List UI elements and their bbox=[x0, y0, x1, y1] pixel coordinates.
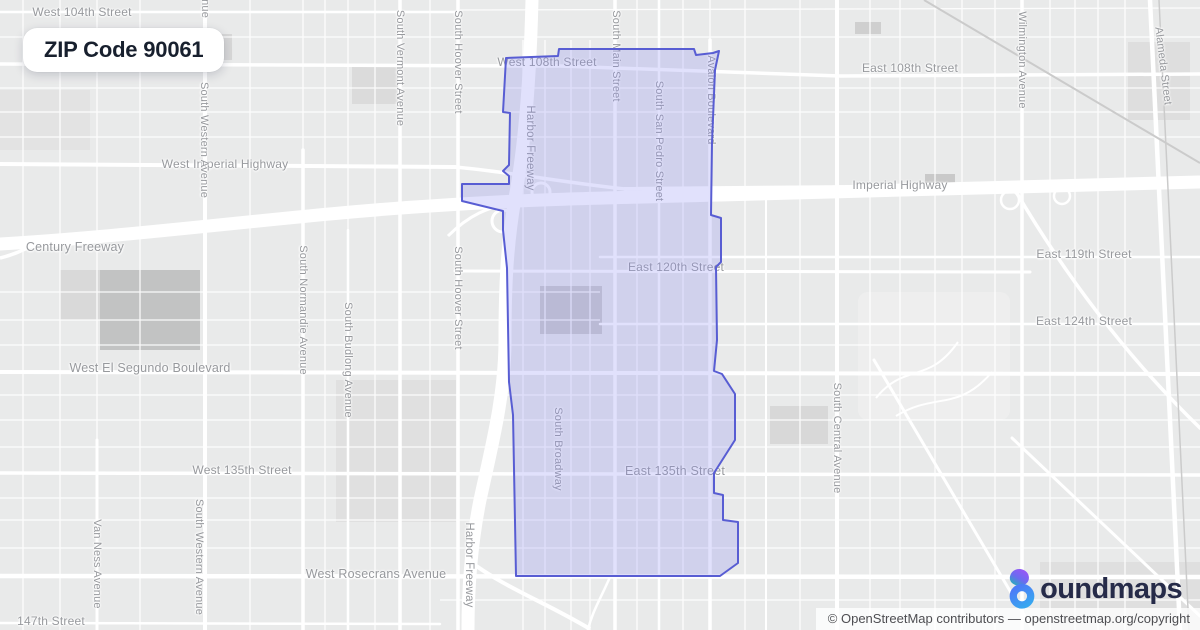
attribution-text: © OpenStreetMap contributors — bbox=[828, 611, 1025, 626]
zip-code-badge-label: ZIP Code 90061 bbox=[44, 37, 203, 62]
attribution-copyright-link[interactable]: openstreetmap.org/copyright bbox=[1025, 611, 1190, 626]
map-attribution: © OpenStreetMap contributors — openstree… bbox=[816, 608, 1200, 630]
map-canvas[interactable]: West 104th StreetWest 108th StreetWest 1… bbox=[0, 0, 1200, 630]
zip-code-badge: ZIP Code 90061 bbox=[23, 28, 224, 72]
boundmaps-logo-text: oundmaps bbox=[1040, 575, 1182, 604]
boundmaps-logo[interactable]: oundmaps bbox=[1006, 569, 1182, 609]
boundmaps-pin-icon bbox=[1006, 569, 1037, 609]
zip-boundary-polygon[interactable] bbox=[462, 49, 738, 576]
